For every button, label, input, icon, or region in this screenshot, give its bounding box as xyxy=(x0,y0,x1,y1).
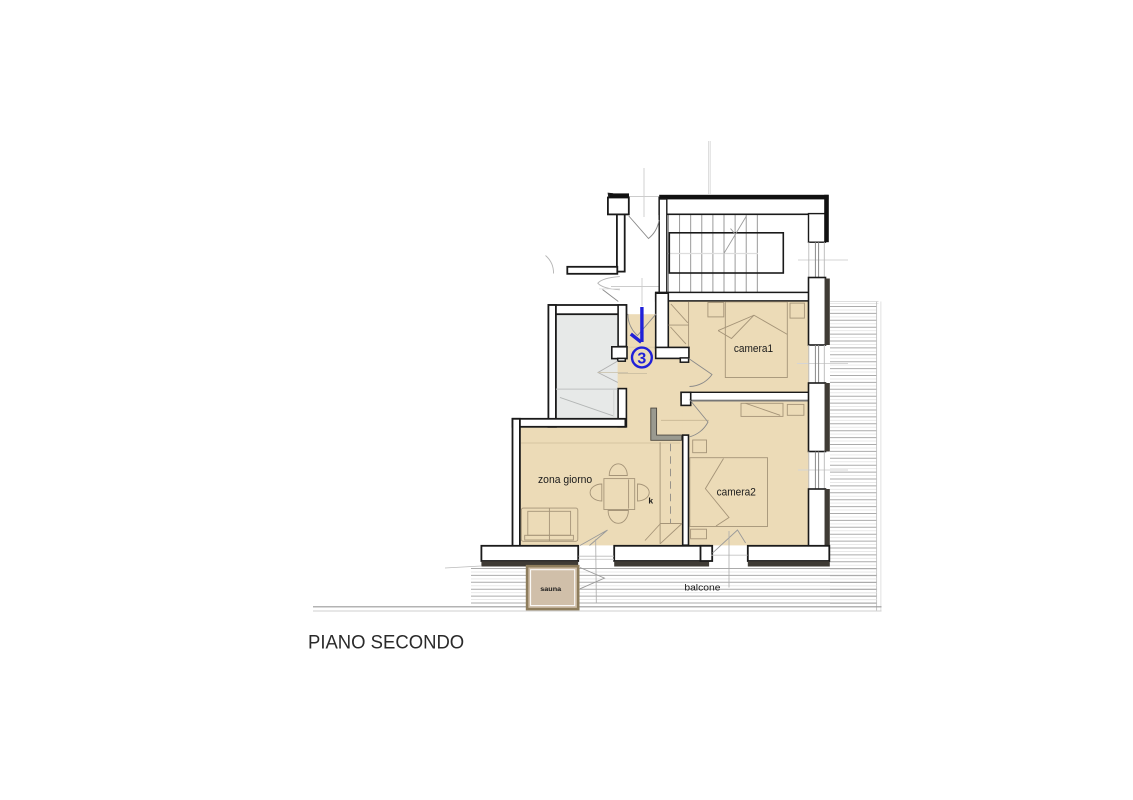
svg-text:3: 3 xyxy=(637,351,646,368)
svg-text:sauna: sauna xyxy=(540,586,561,593)
svg-text:k: k xyxy=(648,496,653,506)
svg-text:balcone: balcone xyxy=(684,583,720,594)
svg-text:zona giorno: zona giorno xyxy=(538,474,592,486)
svg-text:camera1: camera1 xyxy=(734,343,773,355)
svg-text:PIANO SECONDO: PIANO SECONDO xyxy=(308,631,464,653)
svg-text:camera2: camera2 xyxy=(717,486,756,498)
